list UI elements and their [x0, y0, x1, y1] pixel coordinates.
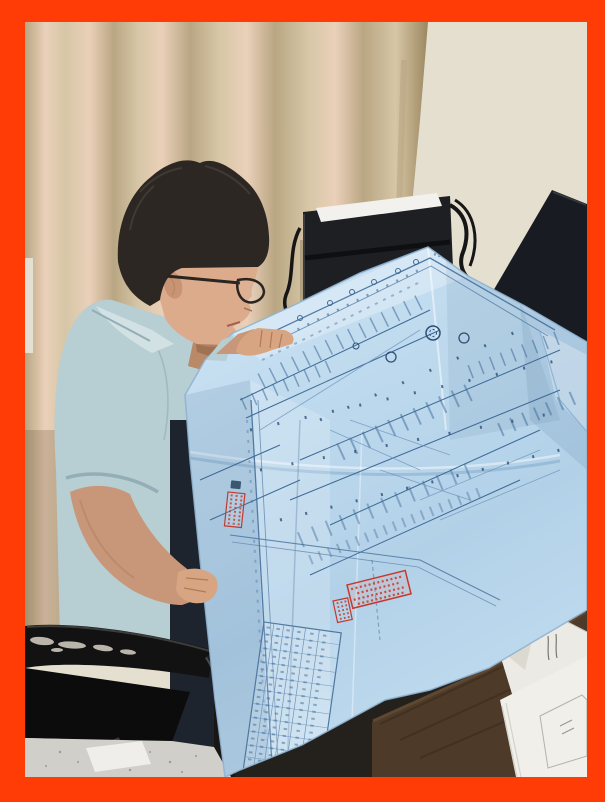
- door-sliver: [25, 258, 33, 353]
- photo-frame: [0, 0, 605, 802]
- photo: [25, 22, 590, 780]
- right-hand: [176, 569, 218, 604]
